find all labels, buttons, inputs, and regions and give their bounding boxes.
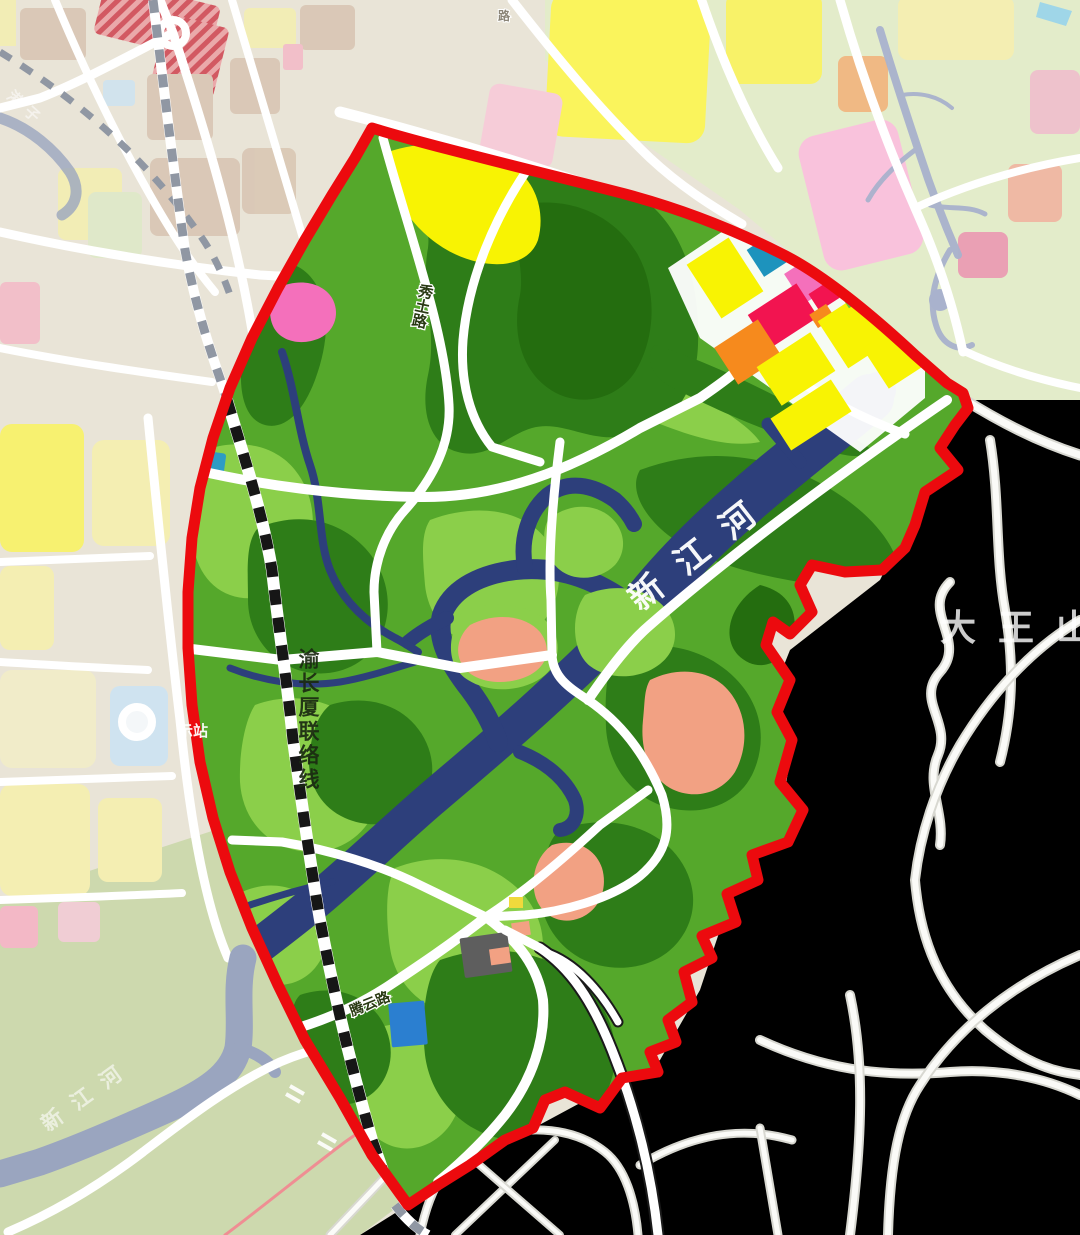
road-label-tiny: 路	[498, 8, 511, 23]
blue-block	[388, 1001, 428, 1048]
map-canvas: 新江河 渝长厦联络线 秀土路 腾云路 大王山 新江河 示站 路 港子	[0, 0, 1080, 1235]
railway-label: 渝长厦联络线	[296, 647, 320, 792]
zone-block	[283, 44, 303, 70]
zone-block	[300, 5, 355, 50]
station-label: 示站	[178, 722, 208, 740]
mountain-label: 大王山	[940, 608, 1080, 649]
zone-block	[0, 784, 90, 896]
planning-map: 新江河 渝长厦联络线 秀土路 腾云路 大王山 新江河 示站 路 港子	[0, 0, 1080, 1235]
zone-block	[958, 232, 1008, 278]
zone-block	[0, 670, 96, 768]
zone-block	[58, 902, 100, 942]
zone-block	[0, 424, 84, 552]
zone-block	[0, 906, 38, 948]
station-ring-icon	[122, 707, 152, 737]
zone-block	[98, 798, 162, 882]
zone-block	[0, 282, 40, 344]
yellow-block-small	[509, 897, 523, 908]
salmon-island	[458, 617, 547, 682]
zone-block	[0, 0, 16, 46]
zone-block	[898, 0, 1014, 60]
zone-block	[103, 80, 135, 106]
salmon-block	[489, 947, 511, 966]
zone-block	[726, 0, 822, 84]
zone-block	[1030, 70, 1080, 134]
zone-block	[244, 8, 296, 48]
zone-block	[0, 566, 54, 650]
